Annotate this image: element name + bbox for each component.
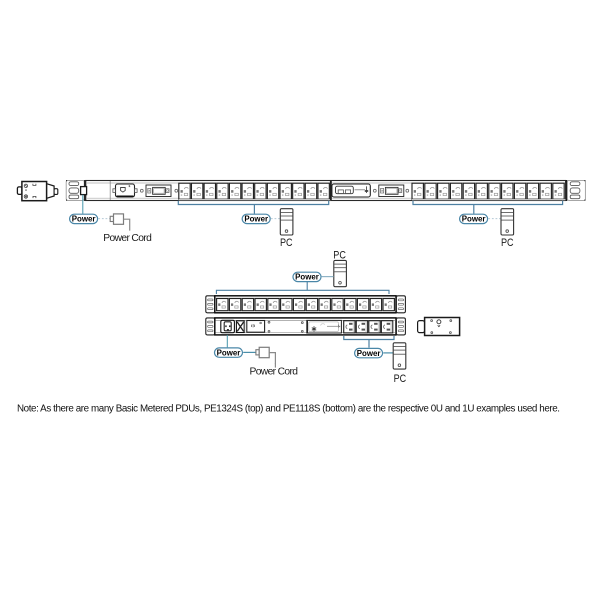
svg-text:Power Cord: Power Cord	[250, 367, 299, 378]
svg-text:PC: PC	[333, 249, 346, 261]
svg-text:Note: As there are many Basic: Note: As there are many Basic Metered PD…	[17, 404, 560, 415]
svg-text:Power Cord: Power Cord	[103, 233, 152, 244]
svg-text:PC: PC	[501, 237, 514, 249]
svg-text:PC: PC	[280, 237, 293, 249]
svg-text:PC: PC	[394, 373, 407, 385]
